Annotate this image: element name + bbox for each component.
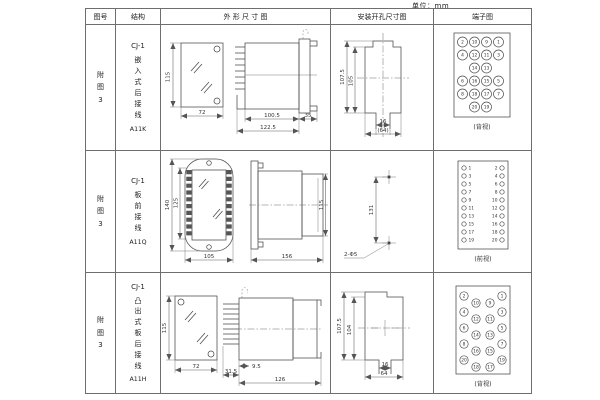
terminal-number: 12	[491, 206, 497, 212]
model-label: CJ-1	[131, 177, 145, 185]
dim-total-length: 156	[282, 254, 293, 260]
terminal-diagram-a11k: 2 10 9 1 4 12 11 3 14 13 6 16 15 5 8 18	[435, 25, 531, 150]
header-figure-no: 图号	[86, 9, 116, 25]
model-label: CJ-1	[131, 283, 145, 291]
dim-front-height: 115	[162, 322, 168, 333]
terminal-number: 2	[461, 40, 464, 46]
front-view: 140 125 105	[165, 159, 233, 263]
terminal-number: 9	[485, 40, 488, 46]
cell-outline-3: 115 72 9.5 31.5 126	[161, 273, 331, 393]
header-outline: 外 形 尺 寸 图	[161, 9, 331, 25]
dim-total-length: 122.5	[260, 125, 276, 131]
dim-offset: 9.5	[252, 364, 261, 370]
figure-no-label: 附 图 3	[97, 69, 104, 107]
terminal-number: 14	[491, 214, 497, 220]
terminal-number: 11	[483, 53, 489, 59]
terminal-number: 14	[471, 66, 477, 72]
dim-total-length: 126	[275, 377, 286, 383]
side-view: 9.5 31.5 126	[223, 287, 321, 385]
terminal-diagram-a11q: 12 34 56 78 910 1112 1314 1516 1718 1920…	[435, 151, 531, 272]
cell-structure-3: CJ-1 凸 出 式 板 后 接 线 A11H	[116, 273, 161, 393]
terminal-number: 15	[487, 348, 493, 354]
dim-total-width: 64	[381, 371, 388, 377]
mounting-drawing-a11h: 107.5 104 16 64	[331, 274, 433, 393]
terminal-number: 18	[471, 92, 477, 98]
terminal-number: 19	[483, 105, 489, 111]
cell-structure-1: CJ-1 嵌 入 式 后 接 线 A11K	[116, 25, 161, 151]
terminal-number: 13	[487, 332, 493, 338]
side-view: 156 115	[249, 161, 328, 263]
dim-front-width: 105	[204, 254, 215, 260]
terminal-number: 7	[468, 190, 471, 196]
cell-mounting-2: 131 2-Φ5	[331, 151, 434, 273]
terminal-number: 2	[494, 166, 497, 172]
figure-no-label: 附 图 3	[97, 314, 104, 352]
dim-side-height: 115	[319, 199, 325, 210]
terminal-number: 10	[491, 198, 497, 204]
terminal-number: 17	[468, 230, 474, 236]
structure-code-label: A11H	[129, 376, 146, 383]
terminal-number: 12	[473, 316, 479, 322]
terminal-number: 4	[462, 309, 465, 315]
structure-type-label: 嵌 入 式 后 接 线	[134, 55, 141, 120]
dim-flange: 35	[305, 113, 312, 119]
cell-outline-1: 115 72 100.5 35	[161, 25, 331, 151]
cell-figure-no-1: 附 图 3	[86, 25, 116, 151]
terminal-number: 2	[462, 293, 465, 299]
dim-slot-width: 16	[382, 362, 389, 368]
dim-total-width: (64)	[377, 128, 388, 134]
terminal-number: 15	[483, 79, 489, 85]
terminal-number: 3	[468, 174, 471, 180]
structure-type-label: 凸 出 式 板 后 接 线	[135, 296, 142, 372]
structure-code-label: A11K	[130, 126, 146, 133]
terminal-number: 17	[483, 92, 489, 98]
hole-marks: 131 2-Φ5	[344, 170, 396, 258]
manual-page: 单位：mm 图号 结构 外 形 尺 寸 图 安装开孔尺寸图 端子图 附 图 3 …	[0, 0, 600, 400]
cell-figure-no-2: 附 图 3	[86, 151, 116, 273]
terminal-number: 9	[488, 300, 491, 306]
model-label: CJ-1	[131, 42, 145, 50]
terminal-number: 7	[497, 92, 500, 98]
cutout-outline: 107.5 104 16 64	[337, 292, 410, 380]
structure-type-label: 板 前 接 线	[135, 190, 142, 233]
cutout-outline: 107.5 105 16 (64)	[340, 33, 409, 137]
spec-table: 图号 结构 外 形 尺 寸 图 安装开孔尺寸图 端子图 附 图 3 CJ-1 嵌…	[85, 8, 532, 394]
dim-front-height: 140	[165, 199, 171, 210]
terminal-number: 16	[473, 348, 479, 354]
outline-drawing-a11k: 115 72 100.5 35	[161, 25, 330, 150]
cell-terminal-1: 2 10 9 1 4 12 11 3 14 13 6 16 15 5 8 18	[434, 25, 531, 151]
terminal-number: 18	[473, 364, 479, 370]
terminal-number: 10	[471, 40, 477, 46]
terminal-circles: 2 4 6 8 20 10 12 14 16 18 9 11 13 15 17 …	[459, 291, 505, 370]
figure-no-label: 附 图 3	[97, 193, 104, 231]
view-label: (前视)	[474, 255, 491, 263]
terminal-number: 19	[468, 238, 474, 244]
dim-front-width: 72	[199, 110, 206, 116]
side-view: 100.5 35 122.5	[235, 30, 317, 135]
terminal-number: 12	[471, 53, 477, 59]
terminal-number: 7	[500, 341, 503, 347]
terminal-rows: 12 34 56 78 910 1112 1314 1516 1718 1920	[461, 166, 503, 244]
terminal-number: 20	[491, 238, 497, 244]
dim-inner-height: 125	[174, 197, 180, 208]
structure-code-label: A11Q	[129, 239, 146, 246]
terminal-number: 3	[497, 53, 500, 59]
cell-figure-no-3: 附 图 3	[86, 273, 116, 393]
terminal-number: 1	[500, 293, 503, 299]
terminal-number: 6	[494, 182, 497, 188]
cell-terminal-3: 2 4 6 8 20 10 12 14 16 18 9 11 13 15 17 …	[434, 273, 531, 393]
front-view: 115 72	[162, 296, 217, 373]
front-view: 115 72	[166, 43, 224, 119]
header-structure: 结构	[116, 9, 161, 25]
terminal-number: 3	[500, 309, 503, 315]
dim-slot-width: 16	[380, 119, 387, 125]
view-label: (背视)	[473, 123, 490, 131]
view-label: (背视)	[474, 380, 491, 388]
terminal-number: 4	[461, 53, 464, 59]
cell-structure-2: CJ-1 板 前 接 线 A11Q	[116, 151, 161, 273]
terminal-circles: 2 10 9 1 4 12 11 3 14 13 6 16 15 5 8 18	[457, 37, 503, 112]
terminal-number: 11	[487, 316, 493, 322]
mounting-drawing-a11k: 107.5 105 16 (64)	[331, 25, 433, 150]
terminal-number: 10	[473, 300, 479, 306]
cell-terminal-2: 12 34 56 78 910 1112 1314 1516 1718 1920…	[434, 151, 531, 273]
terminal-number: 11	[468, 206, 474, 212]
cell-outline-2: 140 125 105 156 115	[161, 151, 331, 273]
cell-mounting-1: 107.5 105 16 (64)	[331, 25, 434, 151]
terminal-number: 4	[494, 174, 497, 180]
terminal-number: 5	[468, 182, 471, 188]
header-terminal: 端子图	[434, 9, 531, 25]
dim-inner-height: 105	[349, 75, 355, 86]
terminal-number: 18	[491, 230, 497, 236]
terminal-number: 8	[461, 92, 464, 98]
terminal-number: 16	[471, 79, 477, 85]
dim-outer-height: 107.5	[337, 317, 343, 333]
header-mounting: 安装开孔尺寸图	[331, 9, 434, 25]
terminal-number: 5	[500, 325, 503, 331]
cell-mounting-3: 107.5 104 16 64	[331, 273, 434, 393]
terminal-number: 19	[499, 357, 505, 363]
terminal-number: 13	[468, 214, 474, 220]
terminal-number: 17	[487, 364, 493, 370]
dim-front-width: 72	[193, 364, 200, 370]
terminal-number: 5	[497, 79, 500, 85]
terminal-number: 20	[471, 105, 477, 111]
outline-drawing-a11h: 115 72 9.5 31.5 126	[161, 274, 330, 393]
terminal-number: 20	[461, 357, 467, 363]
terminal-number: 1	[497, 40, 500, 46]
dim-front-height: 115	[166, 71, 172, 82]
dim-inner-height: 104	[347, 324, 353, 335]
dim-hole-span: 131	[369, 205, 375, 216]
dim-tail: 31.5	[225, 369, 238, 375]
terminal-number: 8	[494, 190, 497, 196]
terminal-diagram-a11h: 2 4 6 8 20 10 12 14 16 18 9 11 13 15 17 …	[435, 274, 531, 393]
terminal-number: 6	[461, 79, 464, 85]
terminal-number: 14	[473, 332, 479, 338]
terminal-number: 1	[468, 166, 471, 172]
terminal-number: 15	[468, 222, 474, 228]
terminal-number: 8	[462, 341, 465, 347]
terminal-number: 13	[483, 66, 489, 72]
hole-spec-label: 2-Φ5	[344, 252, 358, 258]
terminal-number: 16	[491, 222, 497, 228]
dim-outer-height: 107.5	[340, 69, 346, 85]
terminal-number: 9	[468, 198, 471, 204]
outline-drawing-a11q: 140 125 105 156 115	[161, 151, 330, 272]
dim-body-length: 100.5	[264, 113, 280, 119]
terminal-number: 6	[462, 325, 465, 331]
mounting-drawing-a11q: 131 2-Φ5	[331, 151, 433, 272]
